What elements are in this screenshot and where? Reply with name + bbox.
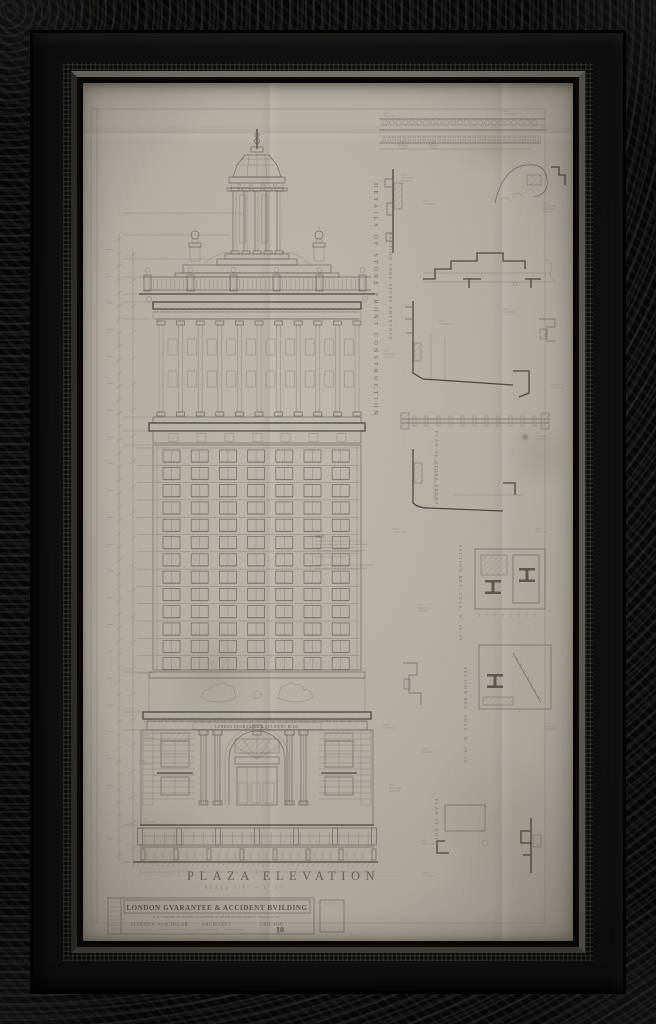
caption-section-cols-29-30: SECTION BET. COLS. Nº 29-30: [463, 667, 468, 764]
framed-architectural-drawing: NOTE: LONDON GUARANTEE & ACCIDENT BLDG: [0, 0, 656, 1024]
revision-box: [320, 900, 344, 932]
sculpture-right: [278, 683, 313, 702]
elevation-drawing: NOTE: LONDON GUARANTEE & ACCIDENT BLDG: [83, 83, 573, 941]
sheet-scale-text: SCALE 1/8" = 1'-0": [205, 885, 284, 890]
caption-details-store-front: DETAILS OF STORE FRONT CONSTRUCTION: [372, 183, 378, 418]
tower-shaft: [153, 445, 361, 670]
annotation-marks: [139, 111, 564, 876]
caption-section-cols-28-29: SECTION BET. COLS. Nº 28-29: [458, 545, 463, 642]
cupola: [175, 129, 339, 277]
sheet-title: PLAZA ELEVATION SCALE 1/8" = 1'-0": [187, 869, 399, 890]
roof-urn-left: [189, 226, 201, 261]
sheet-number: 10: [276, 926, 284, 935]
detail-studies: [379, 119, 565, 873]
title-block-building-name: LONDON GVARANTEE & ACCIDENT BVILDING: [126, 904, 307, 912]
base-attic: LONDON GUARANTEE & ACCIDENT BLDG: [143, 672, 371, 730]
drawing-sheet: NOTE: LONDON GUARANTEE & ACCIDENT BLDG: [83, 83, 573, 941]
column-plan-section: [479, 645, 551, 709]
title-block-location: N.W. CORNER OF MICHIGAN AVENUE & SOUTH W…: [153, 915, 281, 919]
column-plan-section: [475, 549, 545, 617]
roof-urn-right: [313, 226, 325, 261]
caption-plan-of-store-front: PLAN OF STORE FRONT: [434, 431, 439, 506]
note-label: NOTE:: [315, 535, 326, 539]
roof-balustrade: [139, 268, 375, 294]
caption-plan-at-col: PLAN AT COL.: [434, 799, 439, 844]
title-block-architect: ALFRED S. ALSCHULER,: [130, 922, 190, 928]
upper-colonnade: [147, 297, 368, 444]
title-block-architect-title: ARCHITECT: [202, 922, 231, 927]
base-storey: [141, 725, 373, 825]
title-block: LONDON GVARANTEE & ACCIDENT BVILDING N.W…: [108, 898, 344, 935]
caption-section-thru-entrance: SECTION THRU STORE ENTRANCE: [388, 233, 393, 341]
sheet-title-text: PLAZA ELEVATION: [187, 869, 380, 883]
storefront: [132, 825, 378, 875]
sculpture-left: [201, 683, 236, 702]
